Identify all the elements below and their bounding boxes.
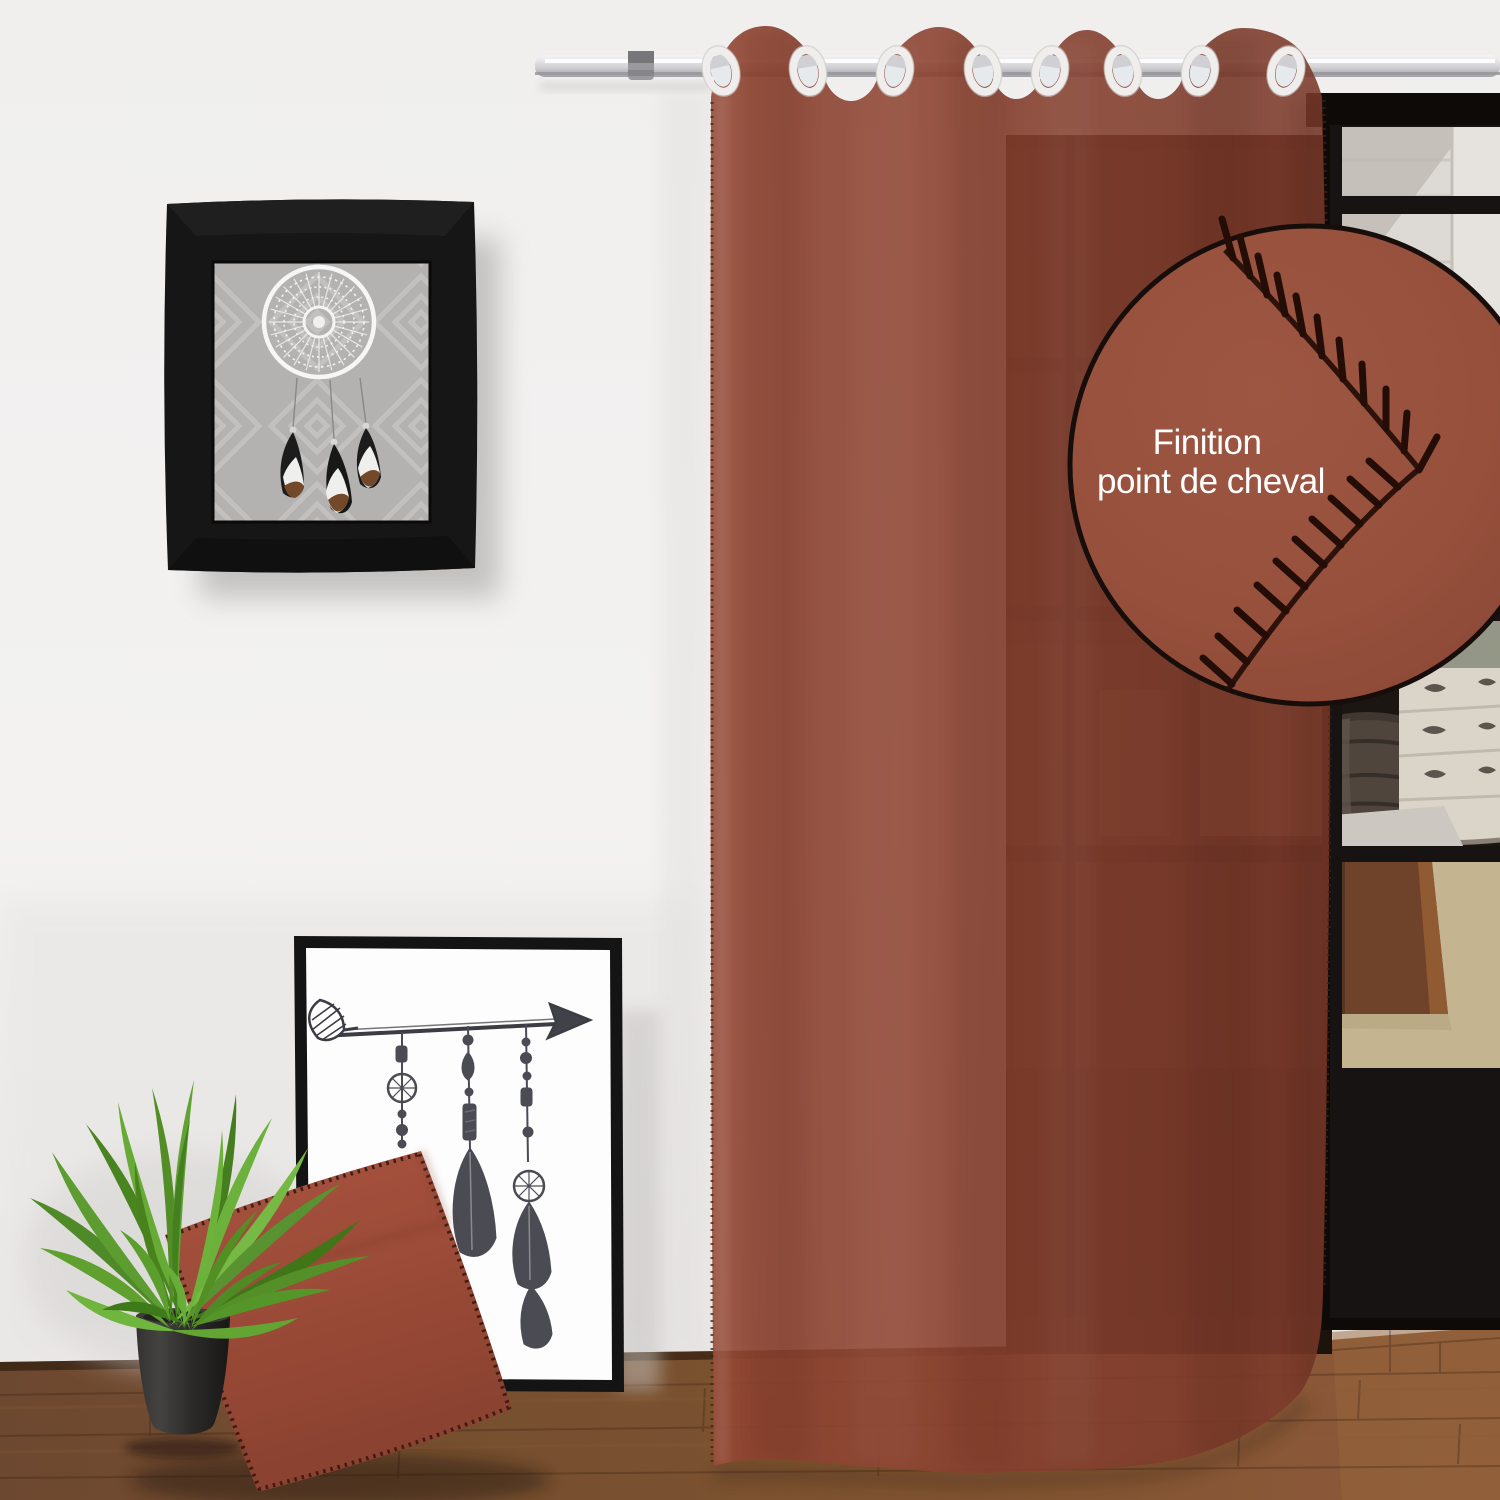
svg-text:Finition: Finition [1153,423,1262,462]
svg-text:point de cheval: point de cheval [1097,462,1325,501]
